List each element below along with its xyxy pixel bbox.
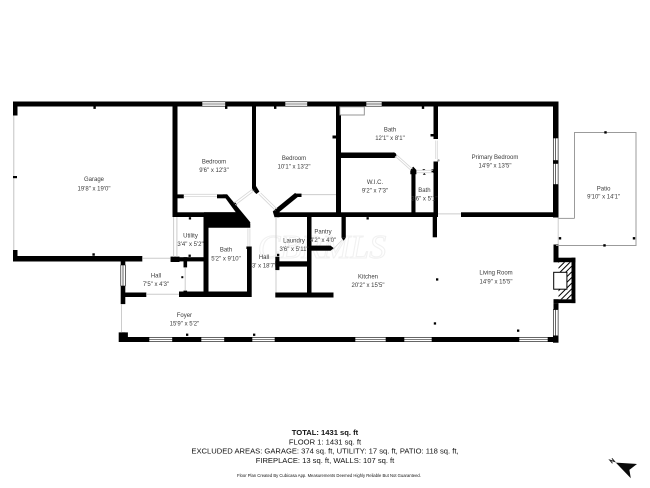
svg-text:Foyer: Foyer bbox=[177, 313, 192, 319]
svg-text:FLOOR 1: 1431 sq. ft: FLOOR 1: 1431 sq. ft bbox=[289, 437, 362, 446]
svg-text:Laundry: Laundry bbox=[283, 239, 305, 245]
svg-text:20'2" x 15'5": 20'2" x 15'5" bbox=[352, 283, 385, 289]
svg-text:Floor Plan Created By Cubicasa: Floor Plan Created By Cubicasa App. Meas… bbox=[237, 473, 421, 478]
svg-text:Hall: Hall bbox=[259, 255, 269, 261]
svg-text:15'9" x 5'2": 15'9" x 5'2" bbox=[170, 322, 200, 328]
svg-text:10'1" x 13'2": 10'1" x 13'2" bbox=[278, 165, 311, 171]
svg-text:Pantry: Pantry bbox=[314, 230, 331, 236]
svg-text:Kitchen: Kitchen bbox=[358, 275, 378, 281]
svg-text:Bedroom: Bedroom bbox=[202, 160, 226, 166]
svg-text:Living Room: Living Room bbox=[479, 270, 512, 276]
svg-text:14'9" x 13'5": 14'9" x 13'5" bbox=[479, 164, 512, 170]
svg-text:14'9" x 15'5": 14'9" x 15'5" bbox=[480, 280, 513, 286]
svg-text:Hall: Hall bbox=[151, 274, 161, 280]
svg-text:12'1" x 8'1": 12'1" x 8'1" bbox=[375, 136, 405, 142]
svg-text:9'2" x 7'3": 9'2" x 7'3" bbox=[362, 188, 388, 194]
svg-text:9'6" x 12'3": 9'6" x 12'3" bbox=[199, 168, 229, 174]
svg-text:7'5" x 4'3": 7'5" x 4'3" bbox=[143, 282, 169, 288]
svg-text:3' x 18'7": 3' x 18'7" bbox=[252, 264, 276, 270]
svg-text:Patio: Patio bbox=[597, 186, 611, 192]
svg-text:Bath: Bath bbox=[220, 248, 232, 254]
svg-text:5'2" x 9'10": 5'2" x 9'10" bbox=[211, 256, 241, 262]
svg-text:3'4" x 5'2": 3'4" x 5'2" bbox=[177, 242, 203, 248]
svg-text:Primary Bedroom: Primary Bedroom bbox=[472, 155, 519, 161]
svg-text:W.I.C.: W.I.C. bbox=[367, 180, 384, 186]
svg-text:Bedroom: Bedroom bbox=[282, 156, 306, 162]
svg-text:9'10" x 14'1": 9'10" x 14'1" bbox=[587, 195, 620, 201]
svg-text:4'2" x 4'0": 4'2" x 4'0" bbox=[310, 238, 336, 244]
svg-text:19'8" x 19'0": 19'8" x 19'0" bbox=[78, 187, 111, 193]
svg-text:Utility: Utility bbox=[183, 234, 198, 240]
svg-text:3'6" x 5'11": 3'6" x 5'11" bbox=[279, 247, 308, 253]
svg-text:Bath: Bath bbox=[418, 188, 430, 194]
svg-text:EXCLUDED AREAS: GARAGE: 374 sq: EXCLUDED AREAS: GARAGE: 374 sq. ft, UTIL… bbox=[191, 447, 458, 456]
svg-text:FIREPLACE: 13 sq. ft, WALLS: 1: FIREPLACE: 13 sq. ft, WALLS: 107 sq. ft bbox=[256, 456, 395, 465]
svg-text:Bath: Bath bbox=[384, 128, 396, 134]
svg-text:TOTAL: 1431 sq. ft: TOTAL: 1431 sq. ft bbox=[292, 428, 359, 437]
svg-text:3'6" x 5'1": 3'6" x 5'1" bbox=[411, 196, 437, 202]
svg-text:Garage: Garage bbox=[84, 177, 105, 183]
